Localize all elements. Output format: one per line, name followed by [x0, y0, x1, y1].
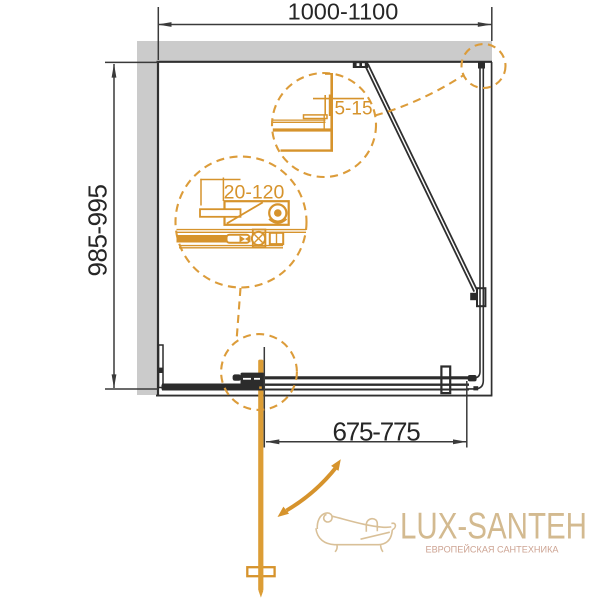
svg-text:5-15: 5-15 [334, 99, 372, 120]
svg-text:985-995: 985-995 [83, 185, 113, 277]
svg-text:ЕВРОПЕЙСКАЯ САНТЕХНИКА: ЕВРОПЕЙСКАЯ САНТЕХНИКА [426, 544, 560, 556]
svg-text:LUX-SANTEH: LUX-SANTEH [400, 505, 587, 547]
svg-text:1000-1100: 1000-1100 [288, 0, 399, 25]
svg-text:20-120: 20-120 [224, 182, 285, 204]
